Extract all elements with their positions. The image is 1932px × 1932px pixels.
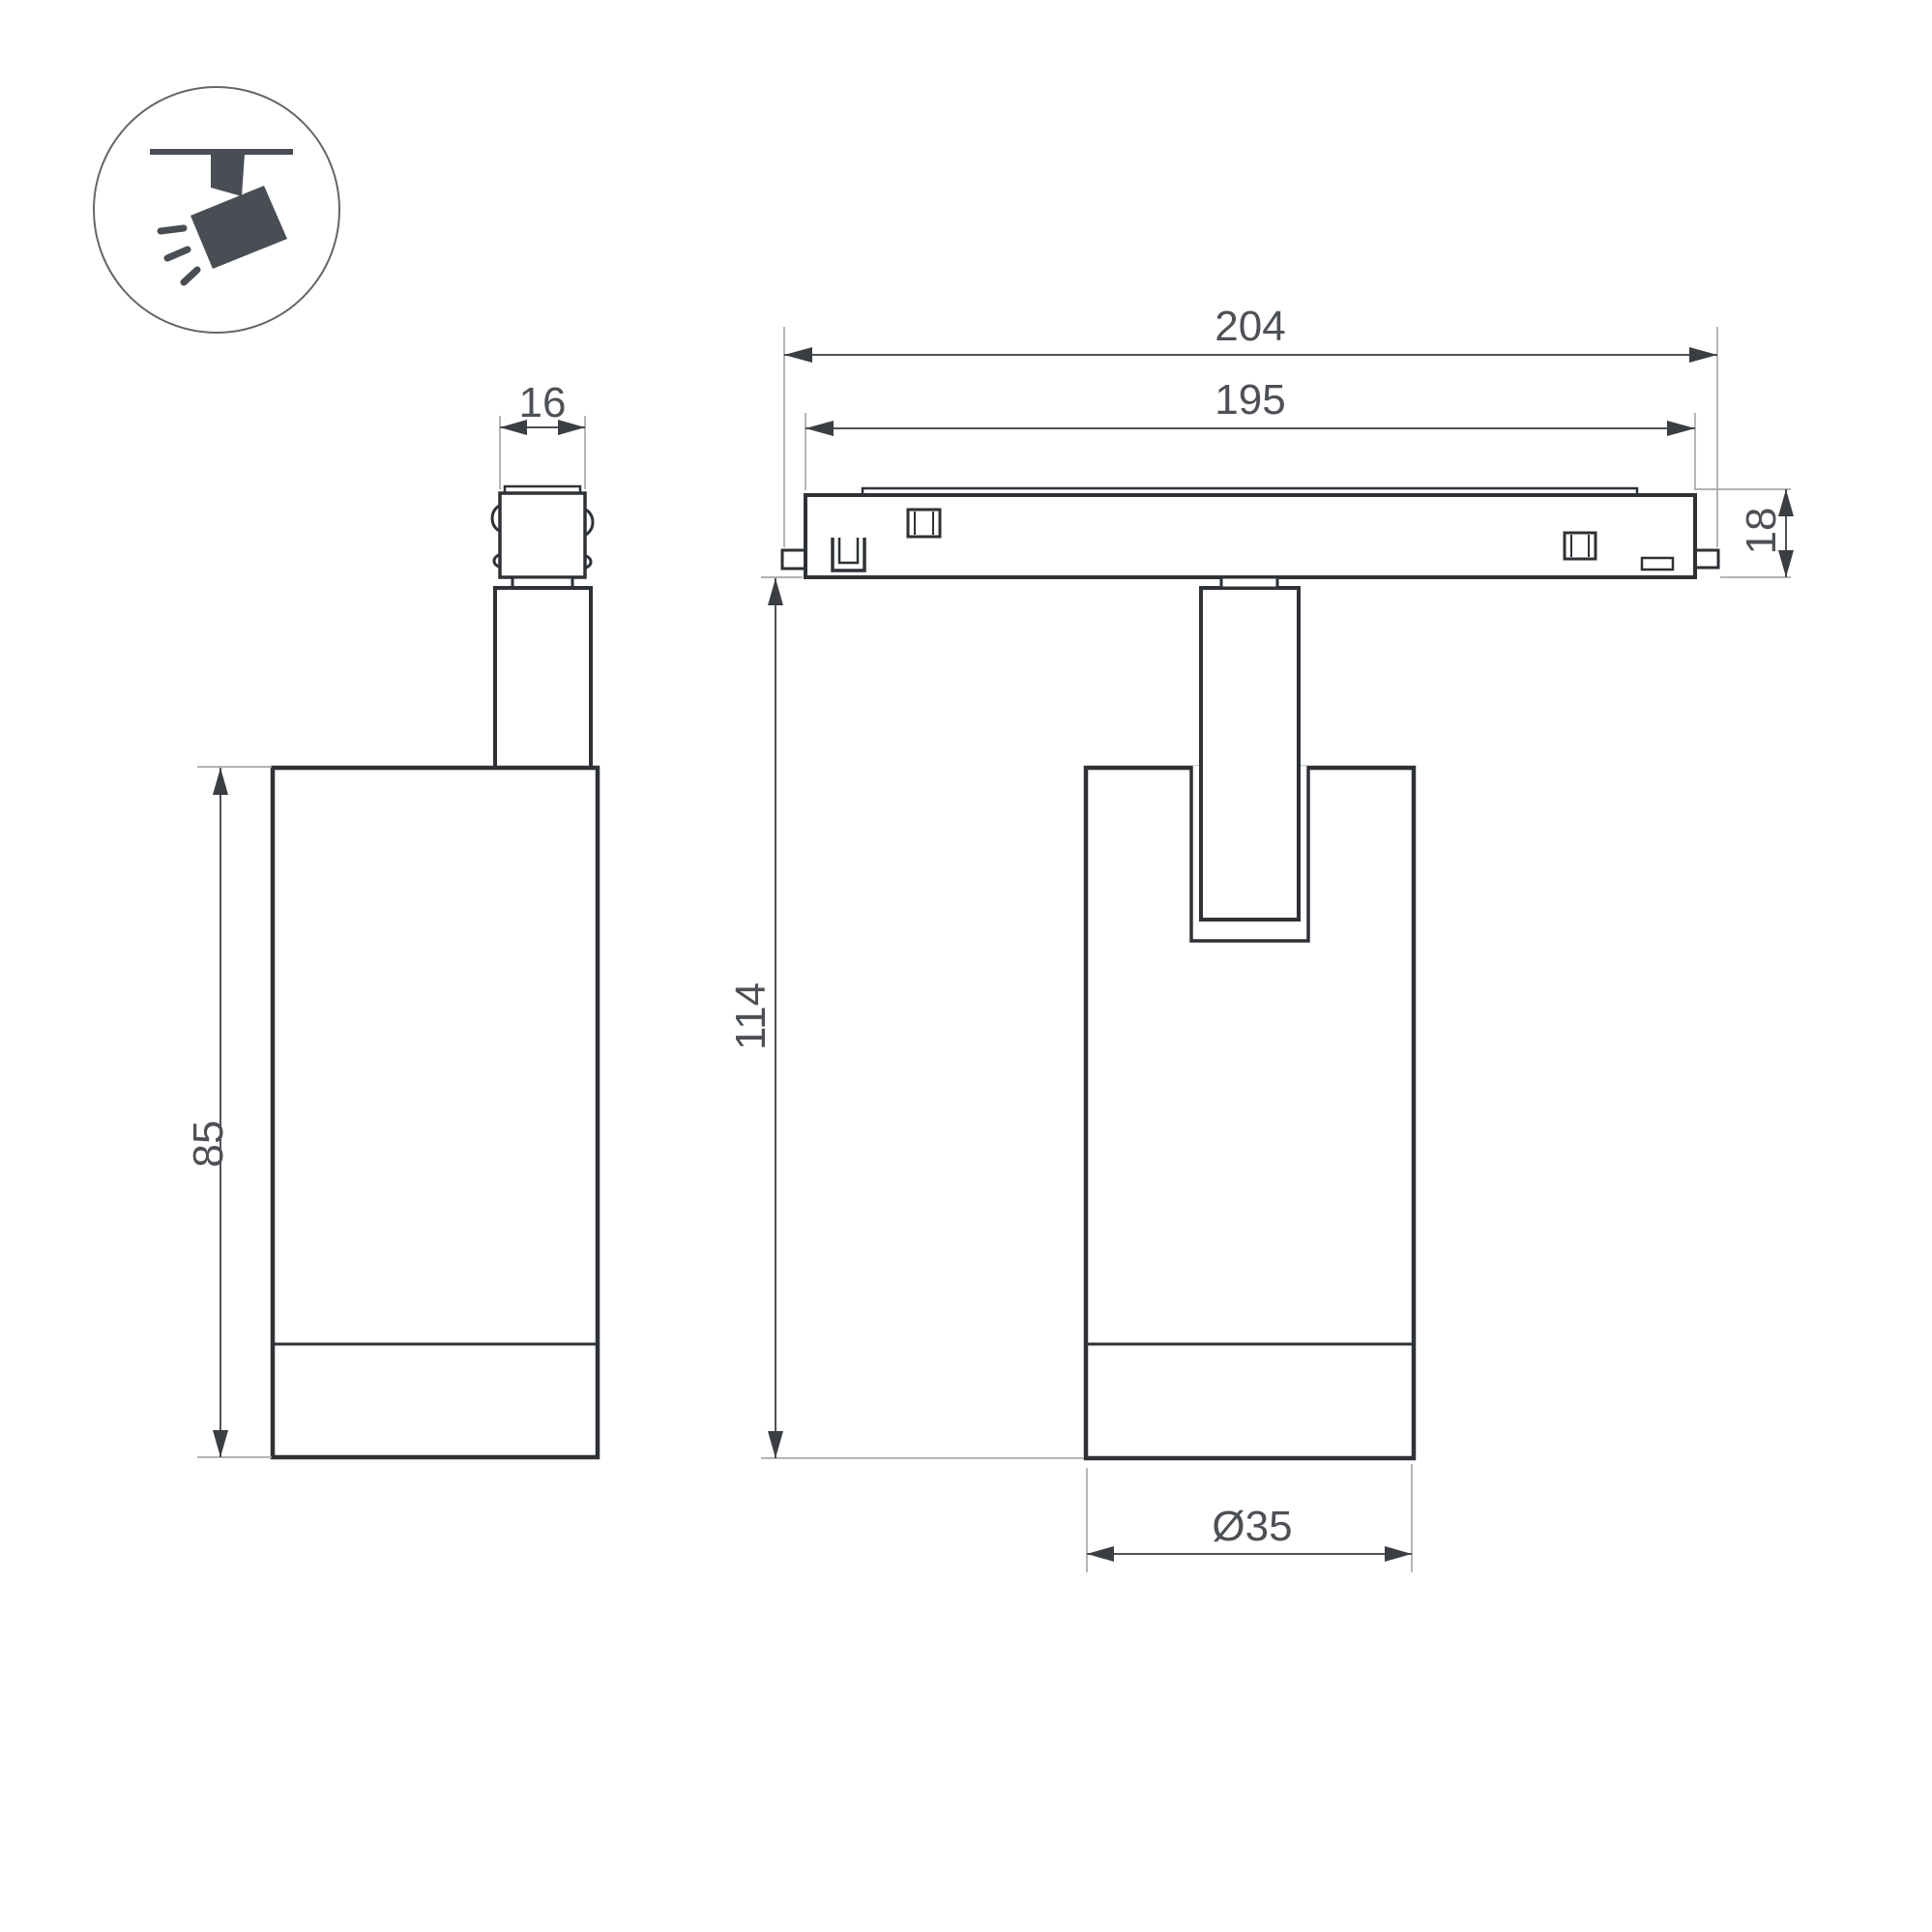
front-stem: [1201, 588, 1299, 920]
side-adapter-box: [500, 493, 585, 577]
side-stem: [495, 588, 591, 768]
dimension-label-housing-height: 85: [185, 1121, 232, 1168]
track-spotlight-icon: [94, 87, 339, 333]
dimension-drawing: 16 204 195 18 85 114 Ø35: [0, 0, 1932, 1932]
side-housing: [273, 768, 598, 1457]
drawing-canvas: 16 204 195 18 85 114 Ø35: [0, 0, 1932, 1932]
dimension-label-track-body: 195: [1215, 376, 1285, 424]
dimension-label-track-total: 204: [1215, 303, 1285, 350]
front-collar: [1221, 577, 1277, 588]
dimension-label-adapter-width: 16: [519, 379, 567, 426]
front-view-track: [782, 488, 1718, 577]
track-tab-right: [1695, 550, 1718, 568]
track-tab-left: [782, 550, 805, 569]
dimension-label-diameter: Ø35: [1212, 1503, 1292, 1550]
dimension-label-track-height: 18: [1738, 508, 1785, 555]
dimension-label-total-height: 114: [727, 982, 775, 1050]
